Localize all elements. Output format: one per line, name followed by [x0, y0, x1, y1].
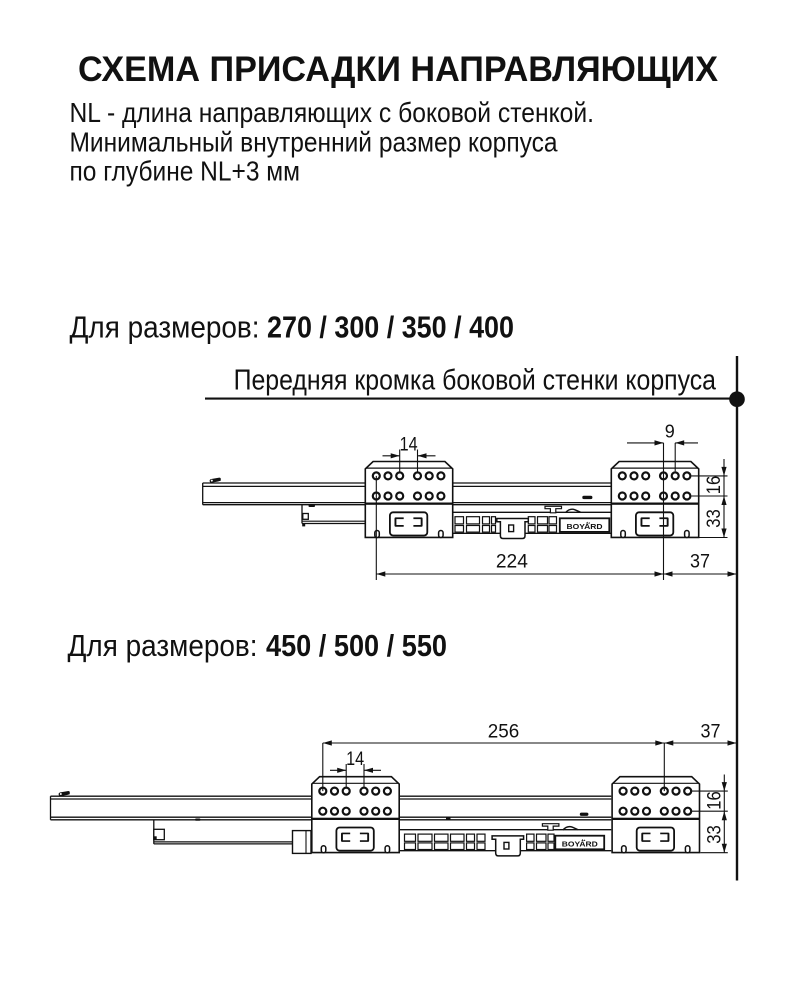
- svg-text:9: 9: [665, 422, 675, 442]
- svg-text:Для размеров:: Для размеров:: [70, 310, 260, 344]
- svg-text:33: 33: [703, 825, 725, 844]
- svg-text:14: 14: [346, 748, 364, 770]
- svg-text:СХЕМА ПРИСАДКИ НАПРАВЛЯЮЩИХ: СХЕМА ПРИСАДКИ НАПРАВЛЯЮЩИХ: [78, 50, 719, 89]
- svg-text:NL - длина направляющих с боко: NL - длина направляющих с боковой стенко…: [70, 97, 595, 128]
- svg-text:по глубине NL+3 мм: по глубине NL+3 мм: [70, 156, 301, 187]
- svg-text:33: 33: [703, 509, 725, 528]
- svg-text:Для размеров:: Для размеров:: [68, 629, 258, 663]
- svg-text:14: 14: [400, 433, 418, 455]
- svg-text:BOYARD: BOYARD: [567, 522, 603, 531]
- svg-text:Передняя кромка боковой стенки: Передняя кромка боковой стенки корпуса: [234, 365, 717, 397]
- svg-text:16: 16: [703, 476, 725, 495]
- svg-text:37: 37: [701, 721, 721, 743]
- svg-text:Минимальный внутренний размер: Минимальный внутренний размер корпуса: [70, 126, 559, 157]
- svg-text:16: 16: [703, 791, 725, 810]
- svg-text:BOYARD: BOYARD: [562, 840, 598, 849]
- svg-text:450 / 500 / 550: 450 / 500 / 550: [266, 629, 447, 663]
- svg-text:256: 256: [488, 721, 520, 743]
- svg-text:270 / 300 / 350 / 400: 270 / 300 / 350 / 400: [267, 310, 514, 344]
- svg-text:37: 37: [690, 551, 710, 573]
- svg-text:224: 224: [496, 551, 528, 573]
